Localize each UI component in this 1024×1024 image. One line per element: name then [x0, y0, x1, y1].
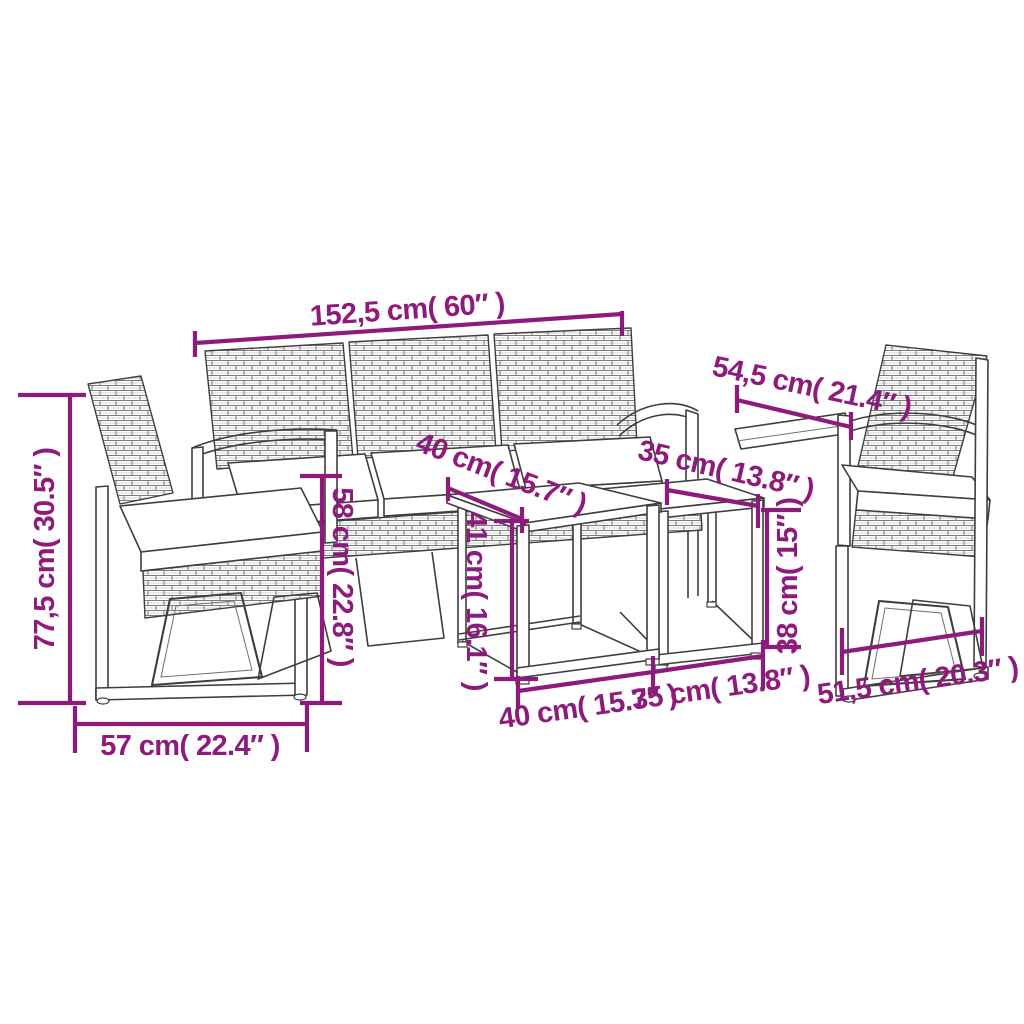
dim-label-chair-height: 77,5 cm( 30.5″ ): [29, 448, 61, 651]
large-table-front-post-left: [517, 525, 529, 679]
left-chair-foot-left: [97, 698, 109, 704]
sofa-back-panel-right: [494, 328, 637, 451]
dim-label-left-chair-width: 57 cm( 22.4″ ): [100, 730, 280, 762]
small-table-floor-rail-right: [712, 601, 757, 644]
right-chair-arm-post: [838, 415, 850, 546]
left-chair-bottom-rail: [96, 683, 306, 700]
sofa-leg-frame: [356, 552, 444, 646]
large-table-front-post-right: [647, 505, 659, 660]
left-chair-foot-right: [294, 694, 306, 700]
diagram-svg: 152,5 cm( 60″ ) 54,5 cm( 21.4″ ) 77,5 cm…: [0, 0, 1024, 1024]
small-table-foot-back: [707, 602, 716, 607]
left-chair-frame-post: [96, 486, 108, 700]
furniture-dimension-diagram: 152,5 cm( 60″ ) 54,5 cm( 21.4″ ) 77,5 cm…: [0, 0, 1024, 1024]
right-chair-side-rail: [735, 413, 851, 449]
dim-label-seat-height: 58 cm( 22.8″ ): [326, 487, 358, 667]
dim-label-large-table-height: 41 cm( 16.1″ ): [460, 511, 492, 691]
right-chair-apron: [852, 510, 988, 557]
dim-label-small-table-height: 38 cm( 15″ ): [772, 498, 804, 655]
left-chair-leg-sled-inner: [161, 601, 252, 677]
left-chair-back-panel: [88, 376, 173, 504]
large-table-foot-back-right: [572, 624, 581, 629]
